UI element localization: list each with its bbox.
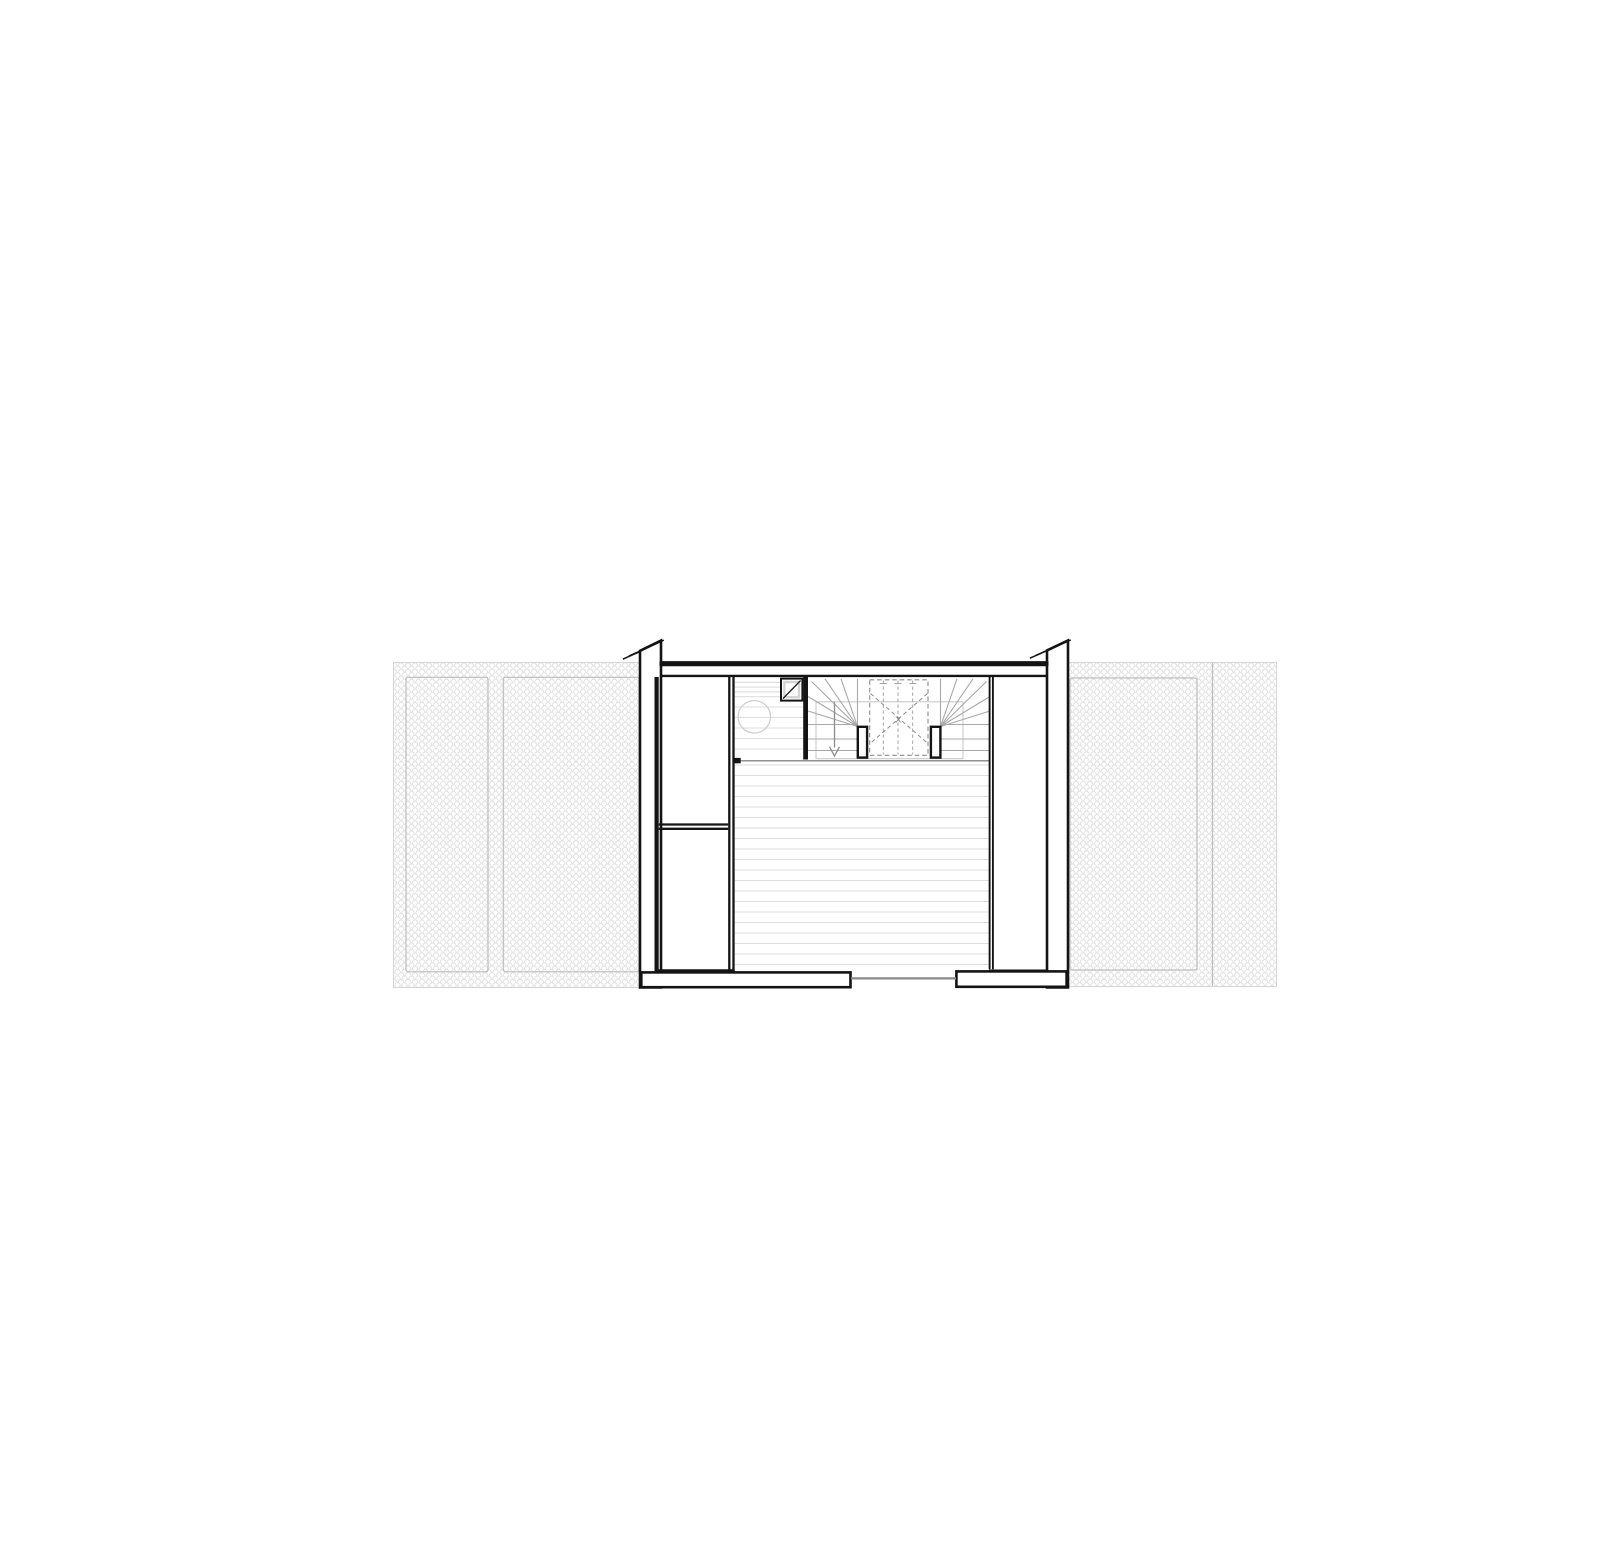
newel-post-left (858, 727, 867, 758)
skylight-square (781, 679, 802, 701)
break-slash-right-2 (1030, 651, 1047, 658)
void-mark: x (895, 713, 902, 726)
flooring-details (735, 682, 780, 696)
stair: x (735, 679, 991, 761)
plan-linework: x (0, 0, 1612, 1559)
party-wall-right (1047, 640, 1068, 987)
roof-panel-right-a (1070, 678, 1197, 970)
roof-panel-left-a (406, 677, 488, 972)
wall-nib (733, 758, 740, 763)
bottom-wall-right-pier (956, 971, 1066, 986)
round-fixture (738, 701, 770, 733)
floor-plan-sheet: x (0, 0, 1612, 1559)
closet (655, 677, 735, 972)
walls (623, 640, 1071, 988)
roof-panel-left-b (503, 677, 639, 972)
stair-treads-right (940, 679, 990, 751)
newel-post-right (931, 727, 941, 758)
break-slash-left-2 (623, 652, 640, 659)
bottom-wall-left-pier (641, 972, 850, 987)
